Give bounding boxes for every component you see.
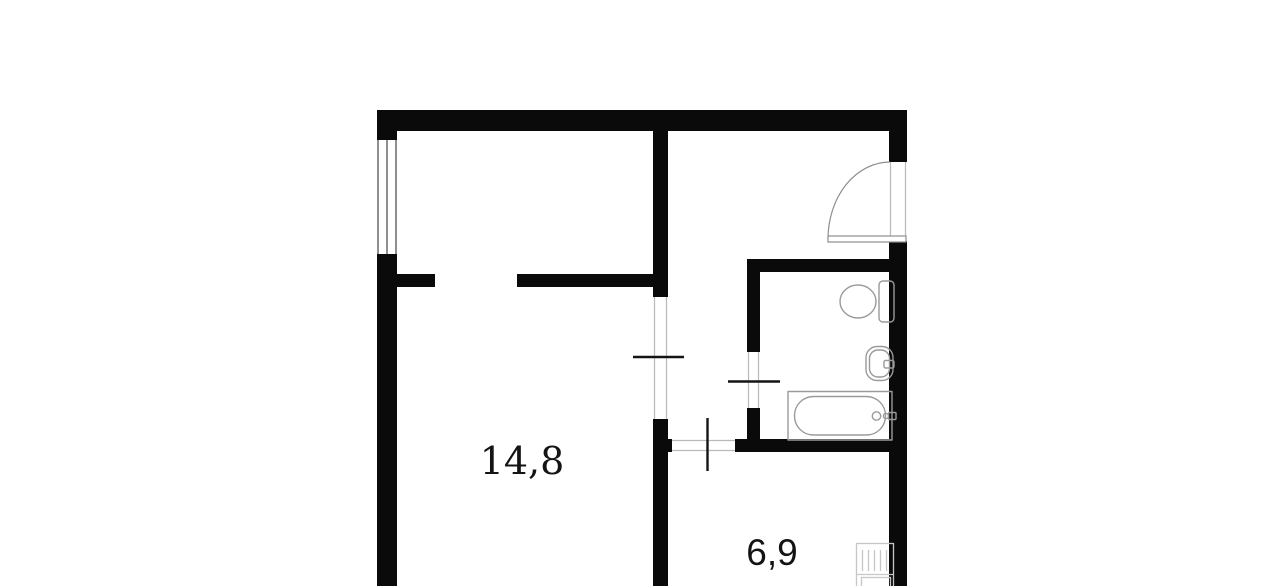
wall-top (377, 110, 907, 131)
wall-bottom-right (735, 439, 889, 452)
floor-plan-canvas: 14,8 6,9 (0, 0, 1280, 586)
wall-bathroom-top (747, 259, 889, 272)
wall-partition-stub (397, 274, 435, 287)
wall-bottom-stub (653, 439, 672, 452)
plan-background (0, 0, 1280, 586)
wall-bathroom-left-upper (747, 259, 760, 352)
door-leaf (828, 236, 906, 242)
room-area-label: 14,8 (480, 439, 565, 483)
kitchen-area-label: 6,9 (746, 532, 797, 573)
floor-plan-svg: 14,8 6,9 (0, 0, 1280, 586)
wall-hall-upper (653, 131, 668, 297)
wall-left-lower (377, 254, 397, 586)
wall-partition-main (517, 274, 653, 287)
wall-right-upper (889, 110, 907, 162)
wall-left-corner (377, 110, 397, 140)
